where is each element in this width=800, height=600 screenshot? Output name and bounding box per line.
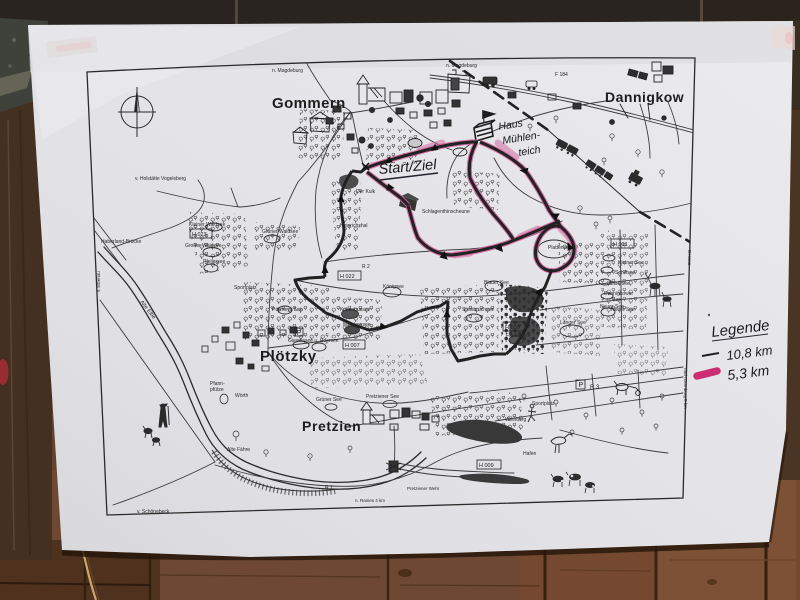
svg-text:n. Magdeburg: n. Magdeburg <box>272 68 303 74</box>
svg-text:Steinbruchsee: Steinbruchsee <box>462 307 494 313</box>
svg-text:Silbersee: Silbersee <box>609 281 630 287</box>
svg-text:Schilfsee: Schilfsee <box>615 270 636 276</box>
svg-text:nach Dornburg 5 km: nach Dornburg 5 km <box>683 368 688 409</box>
svg-text:R 1: R 1 <box>325 485 333 491</box>
svg-text:Sportplatz: Sportplatz <box>532 401 555 407</box>
svg-text:Kleiner Waldsee: Kleiner Waldsee <box>189 222 225 228</box>
svg-text:H 007: H 007 <box>345 343 360 349</box>
svg-text:Pfeilersee: Pfeilersee <box>203 259 225 265</box>
svg-text:Wörth: Wörth <box>235 393 249 399</box>
svg-text:Blauer See: Blauer See <box>484 280 509 286</box>
svg-text:Königsee: Königsee <box>383 284 404 290</box>
svg-text:Grüner See: Grüner See <box>316 397 342 403</box>
svg-text:v. Schönebeck: v. Schönebeck <box>137 509 170 515</box>
svg-text:Haberland-Brücke: Haberland-Brücke <box>101 239 142 245</box>
svg-text:Hafen: Hafen <box>523 451 537 457</box>
svg-text:n. Ranies 4 km: n. Ranies 4 km <box>355 498 385 503</box>
svg-text:H 008: H 008 <box>505 325 520 331</box>
svg-text:Der Kulk: Der Kulk <box>356 189 376 195</box>
svg-text:See: See <box>612 297 621 303</box>
svg-text:P: P <box>579 382 584 389</box>
svg-text:Gommern: Gommern <box>272 95 346 112</box>
svg-text:H 023: H 023 <box>192 232 207 238</box>
svg-text:Pretziener Wehr: Pretziener Wehr <box>407 486 440 491</box>
svg-text:Sportplatz: Sportplatz <box>234 285 257 291</box>
svg-text:H 001: H 001 <box>613 242 628 248</box>
svg-text:n. Magdeburg: n. Magdeburg <box>446 63 477 69</box>
svg-text:Grüner Waldsee: Grüner Waldsee <box>262 229 298 235</box>
svg-text:Gieselasee u. Edersee: Gieselasee u. Edersee <box>288 338 339 344</box>
svg-text:Weinberg: Weinberg <box>505 417 527 423</box>
svg-text:F 184: F 184 <box>555 72 568 78</box>
svg-text:R 3: R 3 <box>590 385 600 391</box>
svg-text:Pretzien: Pretzien <box>302 418 361 434</box>
svg-text:R 2: R 2 <box>362 264 370 270</box>
svg-text:Großer Waldsee: Großer Waldsee <box>185 243 222 249</box>
svg-text:Pretziener See: Pretziener See <box>366 394 399 400</box>
svg-text:Kleiner See: Kleiner See <box>618 260 644 266</box>
svg-text:H 009: H 009 <box>479 463 494 469</box>
svg-text:Schlagenthinscheune: Schlagenthinscheune <box>422 209 470 215</box>
svg-text:Langer See: Langer See <box>560 320 586 326</box>
svg-text:pfütze: pfütze <box>210 387 224 393</box>
svg-text:H 022: H 022 <box>340 274 355 280</box>
svg-text:v. Elbenau: v. Elbenau <box>96 271 101 292</box>
svg-text:Dannigkow: Dannigkow <box>605 89 684 105</box>
svg-text:P: P <box>297 330 302 337</box>
svg-text:Friesensee: Friesensee <box>506 333 531 339</box>
svg-text:Alte Fähre: Alte Fähre <box>227 447 250 453</box>
svg-text:v. Holstätte Vogelsberg: v. Holstätte Vogelsberg <box>135 176 186 182</box>
svg-text:Dessau: Dessau <box>687 250 692 266</box>
svg-text:Plötzky: Plötzky <box>260 348 317 365</box>
svg-text:Neuer See: Neuer See <box>611 307 635 313</box>
svg-text:Pöllmeys See: Pöllmeys See <box>272 307 303 313</box>
svg-text:Kolumbussee: Kolumbussee <box>340 307 371 313</box>
